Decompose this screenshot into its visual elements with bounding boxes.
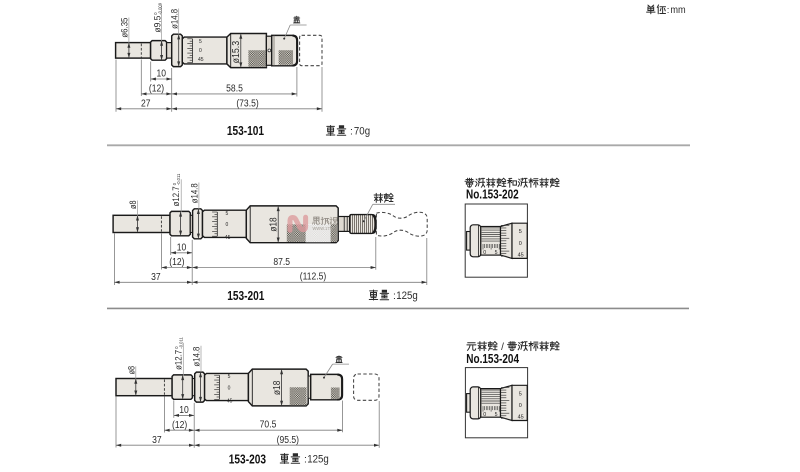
svg-text:mm: mm [670, 5, 685, 16]
svg-text:5: 5 [495, 250, 498, 256]
svg-text:10: 10 [156, 67, 166, 79]
svg-text:ø8: ø8 [128, 201, 138, 210]
svg-text:153-203: 153-203 [229, 452, 267, 466]
svg-text:ø18: ø18 [272, 380, 283, 395]
svg-text:-0.009: -0.009 [158, 2, 163, 15]
svg-text:(12): (12) [169, 255, 184, 267]
svg-text:ø14.8: ø14.8 [170, 9, 180, 29]
svg-text:ø18: ø18 [268, 217, 279, 232]
svg-text:45: 45 [518, 415, 524, 421]
svg-text:37: 37 [152, 433, 162, 445]
svg-text:ø14.8: ø14.8 [192, 347, 202, 367]
svg-text:58.5: 58.5 [226, 82, 243, 94]
svg-text:0: 0 [483, 250, 486, 256]
svg-text:ø9.5: ø9.5 [152, 16, 162, 33]
svg-text:87.5: 87.5 [273, 255, 290, 267]
svg-text:WWW.17SJ: WWW.17SJ [313, 226, 335, 231]
svg-text:0: 0 [226, 222, 229, 228]
svg-text:45: 45 [227, 398, 233, 404]
svg-text:(73.5): (73.5) [236, 97, 258, 109]
svg-text:70g: 70g [354, 126, 370, 138]
svg-text:0: 0 [228, 385, 231, 391]
svg-text:70.5: 70.5 [260, 418, 277, 430]
svg-text:0: 0 [519, 241, 522, 247]
svg-text:45: 45 [198, 57, 204, 63]
svg-text:(95.5): (95.5) [277, 433, 299, 445]
svg-text:-0.011: -0.011 [176, 173, 181, 185]
svg-text:45: 45 [225, 235, 231, 241]
svg-text:No.153-202: No.153-202 [466, 188, 519, 201]
svg-text:45: 45 [518, 253, 524, 259]
svg-text:0: 0 [483, 412, 486, 418]
svg-text:5: 5 [495, 412, 498, 418]
svg-text::: : [350, 125, 353, 137]
svg-text:5: 5 [226, 211, 229, 217]
svg-text:-0.011: -0.011 [178, 336, 183, 348]
svg-text:153-101: 153-101 [227, 124, 265, 138]
svg-text:ø12.7: ø12.7 [171, 186, 181, 206]
svg-text:0: 0 [519, 403, 522, 409]
svg-text:No.153-204: No.153-204 [466, 353, 519, 366]
svg-text:153-201: 153-201 [227, 289, 265, 303]
svg-text:(12): (12) [149, 82, 164, 94]
svg-text:5: 5 [199, 39, 202, 45]
svg-text:10: 10 [177, 241, 187, 253]
svg-text:37: 37 [151, 270, 161, 282]
svg-text:ø6.35: ø6.35 [119, 18, 129, 38]
svg-text:27: 27 [141, 97, 151, 109]
svg-text:(112.5): (112.5) [300, 270, 326, 282]
svg-text:5: 5 [228, 374, 231, 380]
svg-text:ø8: ø8 [126, 366, 136, 375]
svg-text:125g: 125g [307, 454, 329, 466]
svg-text:ø14.8: ø14.8 [189, 183, 199, 203]
svg-text:/: / [501, 342, 504, 353]
svg-text:125g: 125g [396, 290, 418, 302]
svg-text:ø12.7: ø12.7 [173, 350, 183, 370]
svg-text:0: 0 [199, 48, 202, 54]
svg-text::: : [667, 5, 670, 16]
svg-text:5: 5 [519, 391, 522, 397]
svg-text:5: 5 [519, 229, 522, 235]
svg-text:(12): (12) [172, 418, 187, 430]
svg-text:ø15.3: ø15.3 [231, 41, 242, 64]
svg-text:10: 10 [179, 403, 189, 415]
